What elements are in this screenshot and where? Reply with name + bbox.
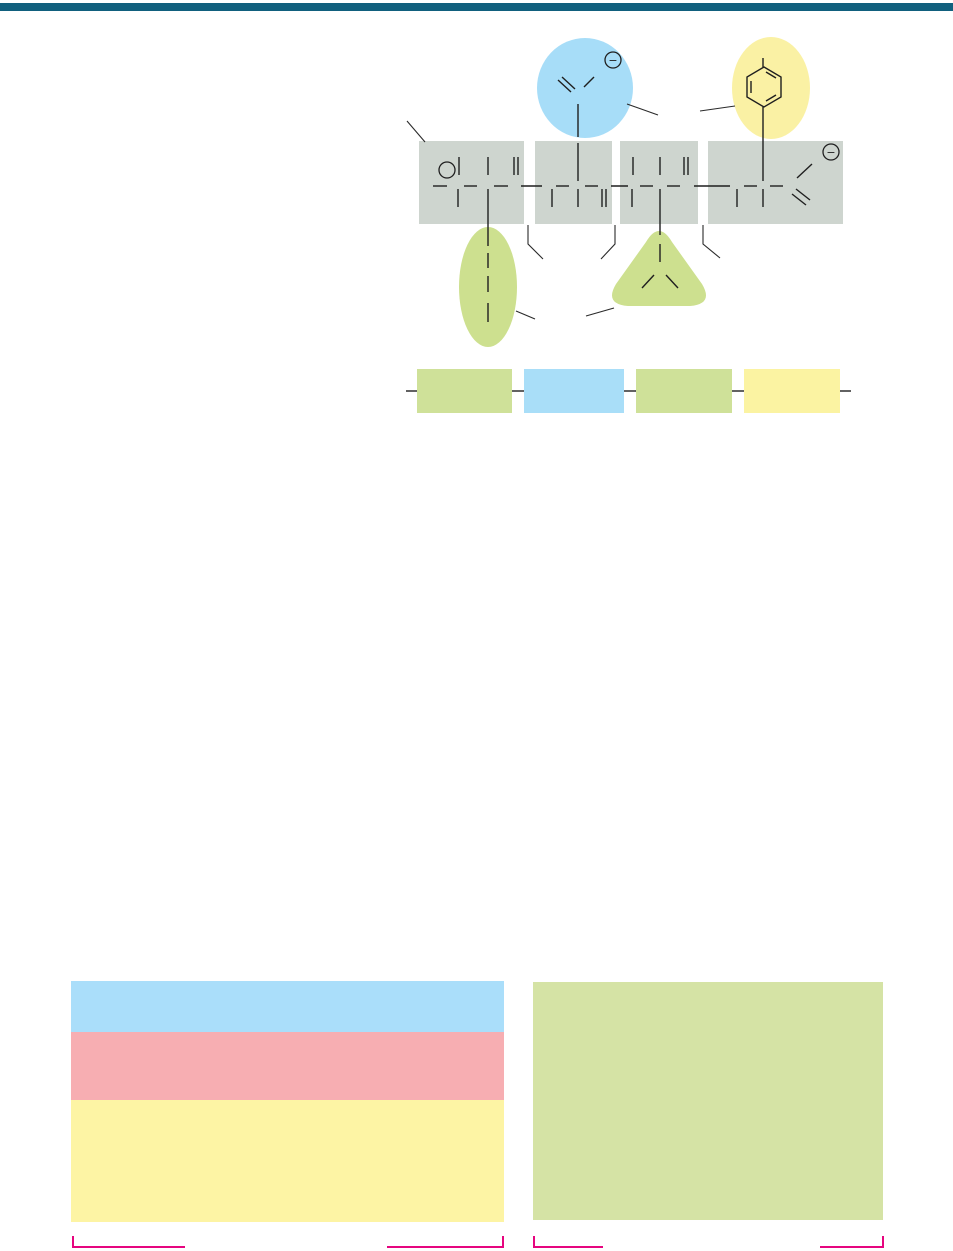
- pointer-line-yellow-side-chain: [700, 106, 735, 111]
- pointer-line-green-triangle: [586, 308, 614, 316]
- schematic-segment-3: [636, 369, 732, 413]
- pointer-line-n-terminus: [407, 121, 425, 142]
- backbone-boxes: [419, 141, 843, 224]
- schematic-segment-1: [417, 369, 512, 413]
- pointer-line-green-oval: [516, 311, 535, 319]
- side-chain-highlight-triangle: [612, 231, 706, 306]
- schematic-segment-4: [744, 369, 840, 413]
- top-rule: [0, 3, 953, 11]
- bracket-left-panel-start: [73, 1236, 185, 1247]
- page-graphics: − −: [0, 0, 953, 1251]
- negative-charge-symbol: −: [608, 54, 617, 67]
- pointer-line-peptide-bond-1: [528, 225, 543, 259]
- pointer-line-peptide-bond-2: [601, 225, 615, 259]
- side-chain-highlight-ellipse-benzene: [732, 37, 810, 139]
- pointer-line-blue-side-chain: [627, 104, 658, 115]
- negative-charge-symbol: −: [826, 146, 835, 159]
- pointer-line-peptide-bond-3: [703, 225, 720, 258]
- left-panel-row-blue: [71, 981, 504, 1032]
- right-panel-green: [533, 982, 883, 1220]
- residue-box-2: [535, 141, 612, 224]
- residue-box-3: [620, 141, 698, 224]
- schematic-segment-2: [524, 369, 624, 413]
- bracket-right-panel-start: [534, 1236, 603, 1247]
- residue-box-1: [419, 141, 524, 224]
- bracket-left-panel-end: [387, 1236, 503, 1247]
- crop-brackets: [73, 1236, 883, 1247]
- side-chain-highlight-circle: [537, 38, 633, 138]
- bottom-panels: [71, 981, 883, 1222]
- left-panel-row-yellow: [71, 1100, 504, 1222]
- left-panel-row-pink: [71, 1032, 504, 1100]
- sequence-schematic: [406, 369, 851, 413]
- textbook-page: − −: [0, 0, 953, 1251]
- bracket-right-panel-end: [820, 1236, 883, 1247]
